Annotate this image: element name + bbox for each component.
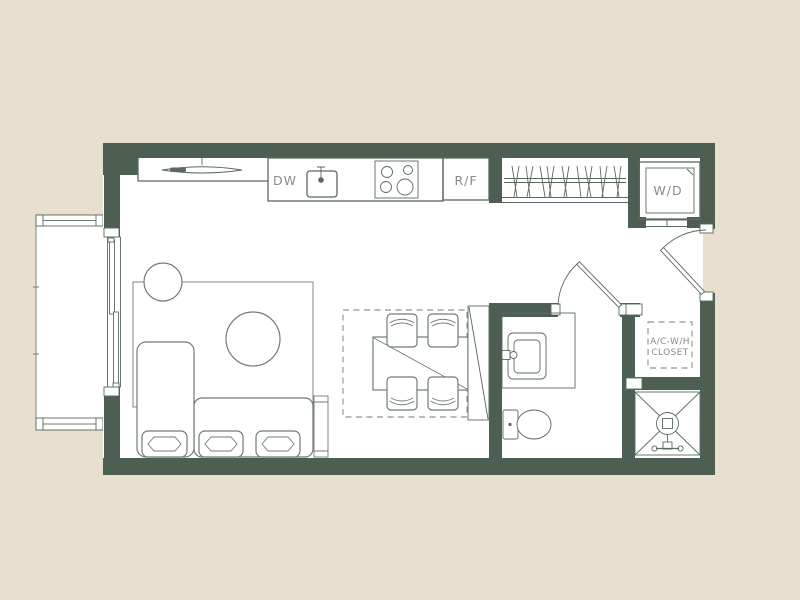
utility-jamb-bottom [626,378,642,389]
entry-jamb-top [700,224,713,233]
wall-bottom [103,458,715,475]
vanity-faucet-knob [510,352,517,359]
wall-left-lower [104,387,120,458]
toilet-bowl [517,410,551,439]
wall-right-lower [700,293,715,458]
balcony-rail-bottom [36,418,103,430]
utility-jamb-top [626,304,642,315]
floorplan-svg: DW R/F W/D [0,0,800,600]
balcony-rail-top [36,215,103,226]
entry-opening [703,229,715,293]
dining-chair-top-right [428,314,458,347]
wall-bath-west [489,303,502,458]
sofa-cushion-3 [256,431,300,457]
sofa-cushion-1 [142,431,187,457]
washer-dryer-label: W/D [653,183,682,198]
slider-jamb-bottom [104,387,119,396]
wall-top [103,143,715,158]
balcony [33,215,107,430]
dining-chair-top-left [387,314,417,347]
round-coffee-table [226,312,280,366]
wall-kitchen-pillar [489,158,502,203]
vanity-faucet [502,351,510,360]
slider-cap-top [108,238,114,242]
refrigerator-label: R/F [454,173,477,188]
utility-closet-label-2: CLOSET [651,348,688,358]
toilet-icon [503,410,551,439]
slider-panel-inner [114,312,119,385]
console-table [314,396,328,457]
dishwasher-label: DW [273,173,297,188]
dining-chair-bottom-right [428,377,458,410]
slider-cap-bottom [113,383,119,387]
floor-plan-page: DW R/F W/D [0,0,800,600]
round-side-table [144,263,182,301]
sliding-glass-door [108,237,121,387]
utility-closet-label-1: A/C-W/H [650,337,690,347]
dining-chair-bottom-left [387,377,417,410]
shower-drain-ring [657,413,679,435]
sofa-cushion-2 [199,431,243,457]
balcony-floor [36,215,107,430]
tall-panel [468,306,489,420]
wall-corner-column [103,143,138,175]
slider-panel-outer [110,240,115,314]
wall-right-upper [700,158,715,229]
slider-jamb-top [104,228,119,237]
